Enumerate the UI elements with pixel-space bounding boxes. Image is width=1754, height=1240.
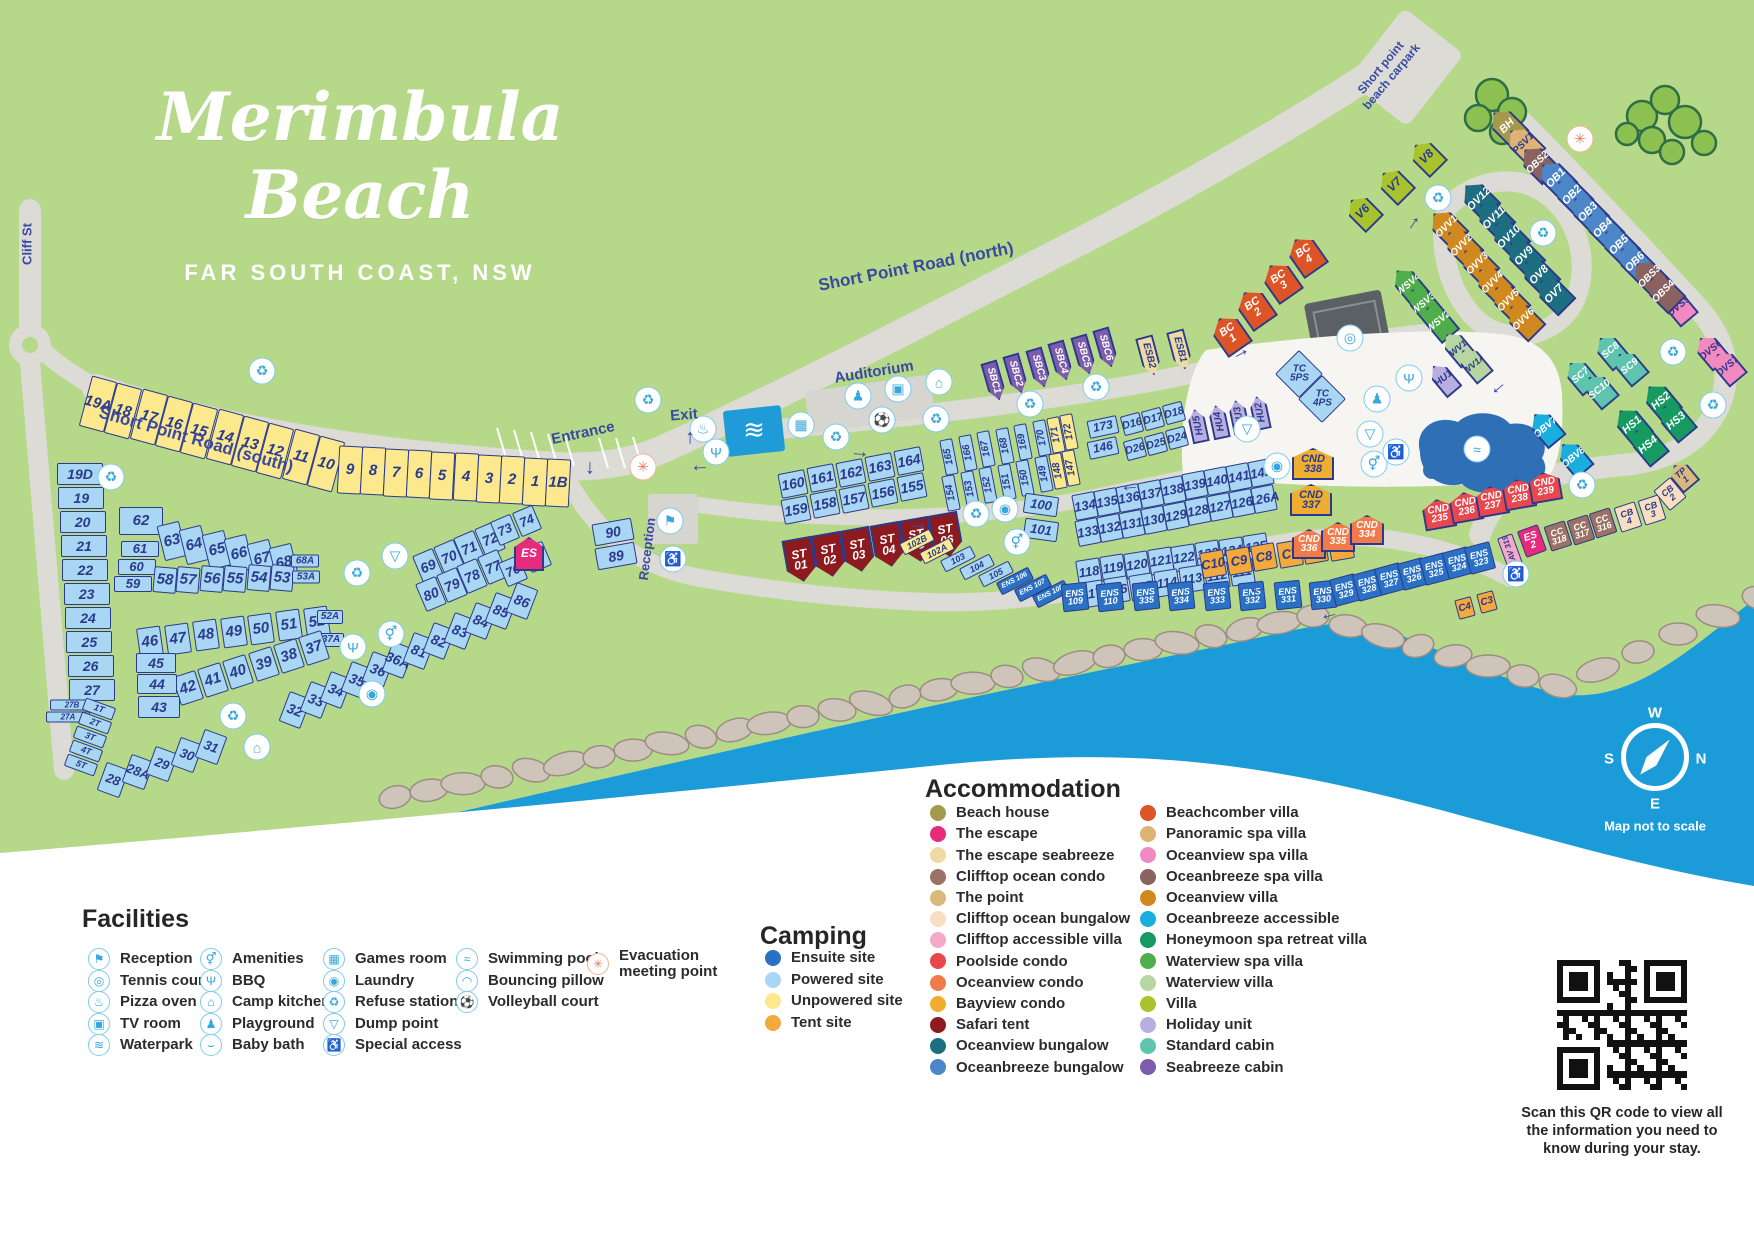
- legend-item-waterpark: ≋Waterpark: [88, 1034, 193, 1056]
- legend-label: Bayview condo: [956, 996, 1065, 1012]
- legend-swatch: [930, 805, 946, 821]
- refuse-station-icon: ♻: [323, 991, 345, 1013]
- waterpark-icon: ≋: [88, 1034, 110, 1056]
- legend-swatch: [1140, 1059, 1156, 1075]
- legend-label: Camp kitchen: [232, 994, 330, 1010]
- qr-caption: Scan this QR code to view all the inform…: [1512, 1104, 1732, 1158]
- legend-item-bbq: ΨBBQ: [200, 970, 265, 992]
- camp-kitchen-icon: ⌂: [200, 991, 222, 1013]
- legend-item-beachcomber-villa: Beachcomber villa: [1140, 805, 1299, 821]
- dump-point-icon: ▽: [323, 1013, 345, 1035]
- legend-item-tent-site: Tent site: [765, 1015, 852, 1031]
- evacuation-meeting-point-icon: ✳: [587, 953, 609, 975]
- legend-swatch: [930, 911, 946, 927]
- legend-label: Villa: [1166, 996, 1197, 1012]
- legend-swatch: [930, 996, 946, 1012]
- legend-item-tv-room: ▣TV room: [88, 1013, 181, 1035]
- legend-label: The point: [956, 890, 1024, 906]
- legend-label: Holiday unit: [1166, 1017, 1252, 1033]
- legend-items-layer: ⚑Reception◎Tennis court♨Pizza oven▣TV ro…: [0, 0, 1754, 1240]
- legend-label: Seabreeze cabin: [1166, 1060, 1284, 1076]
- legend-swatch: [930, 847, 946, 863]
- legend-item-seabreeze-cabin: Seabreeze cabin: [1140, 1059, 1284, 1075]
- legend-label: Ensuite site: [791, 950, 875, 966]
- legend-item-clifftop-ocean-condo: Clifftop ocean condo: [930, 869, 1105, 885]
- legend-label: Oceanview spa villa: [1166, 848, 1308, 864]
- laundry-icon: ◉: [323, 970, 345, 992]
- legend-label: Panoramic spa villa: [1166, 826, 1306, 842]
- legend-label: Beachcomber villa: [1166, 805, 1299, 821]
- legend-item-holiday-unit: Holiday unit: [1140, 1017, 1252, 1033]
- legend-item-dump-point: ▽Dump point: [323, 1013, 438, 1035]
- legend-label: Waterpark: [120, 1037, 193, 1053]
- legend-item-pizza-oven: ♨Pizza oven: [88, 991, 197, 1013]
- legend-label: Pizza oven: [120, 994, 197, 1010]
- legend-swatch: [930, 1017, 946, 1033]
- pizza-oven-icon: ♨: [88, 991, 110, 1013]
- legend-label: Oceanview bungalow: [956, 1038, 1109, 1054]
- special-access-icon: ♿: [323, 1034, 345, 1056]
- legend-item-refuse-station: ♻Refuse station: [323, 991, 458, 1013]
- legend-label: Unpowered site: [791, 993, 903, 1009]
- legend-label: Oceanview condo: [956, 975, 1084, 991]
- legend-item-safari-tent: Safari tent: [930, 1017, 1029, 1033]
- legend-swatch: [1140, 996, 1156, 1012]
- legend-swatch: [930, 932, 946, 948]
- legend-item-standard-cabin: Standard cabin: [1140, 1038, 1274, 1054]
- legend-item-unpowered-site: Unpowered site: [765, 993, 903, 1009]
- legend-item-panoramic-spa-villa: Panoramic spa villa: [1140, 826, 1306, 842]
- legend-item-amenities: ⚥Amenities: [200, 948, 304, 970]
- legend-item-oceanview-bungalow: Oceanview bungalow: [930, 1038, 1109, 1054]
- legend-item-tennis-court: ◎Tennis court: [88, 970, 209, 992]
- legend-item-camp-kitchen: ⌂Camp kitchen: [200, 991, 330, 1013]
- legend-label: Clifftop accessible villa: [956, 932, 1122, 948]
- legend-label: Tent site: [791, 1015, 852, 1031]
- legend-item-villa: Villa: [1140, 996, 1197, 1012]
- legend-label: Playground: [232, 1016, 315, 1032]
- reception-icon: ⚑: [88, 948, 110, 970]
- volleyball-court-icon: ⚽: [456, 991, 478, 1013]
- legend-swatch: [765, 1015, 781, 1031]
- amenities-icon: ⚥: [200, 948, 222, 970]
- legend-swatch: [1140, 890, 1156, 906]
- bbq-icon: Ψ: [200, 970, 222, 992]
- legend-swatch: [765, 993, 781, 1009]
- legend-label: Baby bath: [232, 1037, 305, 1053]
- legend-swatch: [930, 826, 946, 842]
- legend-swatch: [765, 972, 781, 988]
- legend-label: BBQ: [232, 973, 265, 989]
- swimming-pool-icon: ≈: [456, 948, 478, 970]
- tennis-court-icon: ◎: [88, 970, 110, 992]
- baby-bath-icon: ⌣: [200, 1034, 222, 1056]
- legend-swatch: [765, 950, 781, 966]
- legend-label: Oceanbreeze accessible: [1166, 911, 1339, 927]
- qr-code: [1553, 956, 1691, 1094]
- legend-item-clifftop-ocean-bungalow: Clifftop ocean bungalow: [930, 911, 1130, 927]
- legend-label: Refuse station: [355, 994, 458, 1010]
- legend-swatch: [1140, 932, 1156, 948]
- legend-swatch: [930, 1038, 946, 1054]
- legend-item-games-room: ▦Games room: [323, 948, 447, 970]
- legend-label: Dump point: [355, 1016, 438, 1032]
- legend-label: Honeymoon spa retreat villa: [1166, 932, 1367, 948]
- legend-label: Powered site: [791, 972, 884, 988]
- legend-item-volleyball-court: ⚽Volleyball court: [456, 991, 599, 1013]
- legend-label: Standard cabin: [1166, 1038, 1274, 1054]
- legend-swatch: [930, 869, 946, 885]
- legend-label: Poolside condo: [956, 954, 1068, 970]
- legend-label: Oceanview villa: [1166, 890, 1278, 906]
- legend-item-ensuite-site: Ensuite site: [765, 950, 875, 966]
- legend-item-beach-house: Beach house: [930, 805, 1049, 821]
- legend-item-special-access: ♿Special access: [323, 1034, 462, 1056]
- legend-item-bouncing-pillow: ◠Bouncing pillow: [456, 970, 604, 992]
- legend-label: Tennis court: [120, 973, 209, 989]
- legend-label: Oceanbreeze bungalow: [956, 1060, 1124, 1076]
- legend-swatch: [1140, 869, 1156, 885]
- legend-swatch: [930, 975, 946, 991]
- legend-item-waterview-villa: Waterview villa: [1140, 975, 1273, 991]
- legend-swatch: [930, 1059, 946, 1075]
- legend-item-oceanview-condo: Oceanview condo: [930, 975, 1084, 991]
- legend-label: Waterview spa villa: [1166, 954, 1303, 970]
- legend-label: TV room: [120, 1016, 181, 1032]
- legend-item-evacuation-meeting-point: ✳Evacuation meeting point: [587, 948, 729, 980]
- legend-swatch: [930, 890, 946, 906]
- legend-item-oceanbreeze-bungalow: Oceanbreeze bungalow: [930, 1059, 1124, 1075]
- legend-label: Volleyball court: [488, 994, 599, 1010]
- legend-label: Clifftop ocean bungalow: [956, 911, 1130, 927]
- legend-item-baby-bath: ⌣Baby bath: [200, 1034, 305, 1056]
- legend-item-powered-site: Powered site: [765, 972, 884, 988]
- legend-item-the-point: The point: [930, 890, 1024, 906]
- legend-swatch: [1140, 1017, 1156, 1033]
- legend-label: Evacuation meeting point: [619, 948, 729, 980]
- tv-room-icon: ▣: [88, 1013, 110, 1035]
- legend-swatch: [1140, 911, 1156, 927]
- legend-label: Swimming pool: [488, 951, 599, 967]
- legend-item-bayview-condo: Bayview condo: [930, 996, 1065, 1012]
- legend-swatch: [1140, 847, 1156, 863]
- legend-label: The escape seabreeze: [956, 848, 1114, 864]
- legend-label: Amenities: [232, 951, 304, 967]
- legend-item-the-escape: The escape: [930, 826, 1038, 842]
- legend-item-reception: ⚑Reception: [88, 948, 193, 970]
- legend-item-oceanview-spa-villa: Oceanview spa villa: [1140, 847, 1308, 863]
- legend-item-waterview-spa-villa: Waterview spa villa: [1140, 953, 1303, 969]
- legend-label: Laundry: [355, 973, 414, 989]
- legend-item-laundry: ◉Laundry: [323, 970, 414, 992]
- legend-item-oceanbreeze-spa-villa: Oceanbreeze spa villa: [1140, 869, 1323, 885]
- bouncing-pillow-icon: ◠: [456, 970, 478, 992]
- legend-swatch: [930, 953, 946, 969]
- legend-item-the-escape-seabreeze: The escape seabreeze: [930, 847, 1114, 863]
- legend-label: The escape: [956, 826, 1038, 842]
- legend-item-honeymoon-spa-retreat-villa: Honeymoon spa retreat villa: [1140, 932, 1367, 948]
- legend-item-poolside-condo: Poolside condo: [930, 953, 1068, 969]
- legend-item-swimming-pool: ≈Swimming pool: [456, 948, 599, 970]
- playground-icon: ♟: [200, 1013, 222, 1035]
- games-room-icon: ▦: [323, 948, 345, 970]
- legend-item-clifftop-accessible-villa: Clifftop accessible villa: [930, 932, 1122, 948]
- legend-swatch: [1140, 953, 1156, 969]
- legend-label: Games room: [355, 951, 447, 967]
- legend-swatch: [1140, 1038, 1156, 1054]
- legend-label: Beach house: [956, 805, 1049, 821]
- park-map: 19A1817161514131211109876543211B19D19202…: [0, 0, 1754, 1240]
- legend-swatch: [1140, 826, 1156, 842]
- legend-label: Safari tent: [956, 1017, 1029, 1033]
- legend-item-oceanview-villa: Oceanview villa: [1140, 890, 1278, 906]
- legend-label: Clifftop ocean condo: [956, 869, 1105, 885]
- legend-item-playground: ♟Playground: [200, 1013, 315, 1035]
- legend-label: Waterview villa: [1166, 975, 1273, 991]
- legend-swatch: [1140, 805, 1156, 821]
- legend-item-oceanbreeze-accessible: Oceanbreeze accessible: [1140, 911, 1339, 927]
- legend-label: Oceanbreeze spa villa: [1166, 869, 1323, 885]
- legend-swatch: [1140, 975, 1156, 991]
- legend-label: Reception: [120, 951, 193, 967]
- legend-label: Special access: [355, 1037, 462, 1053]
